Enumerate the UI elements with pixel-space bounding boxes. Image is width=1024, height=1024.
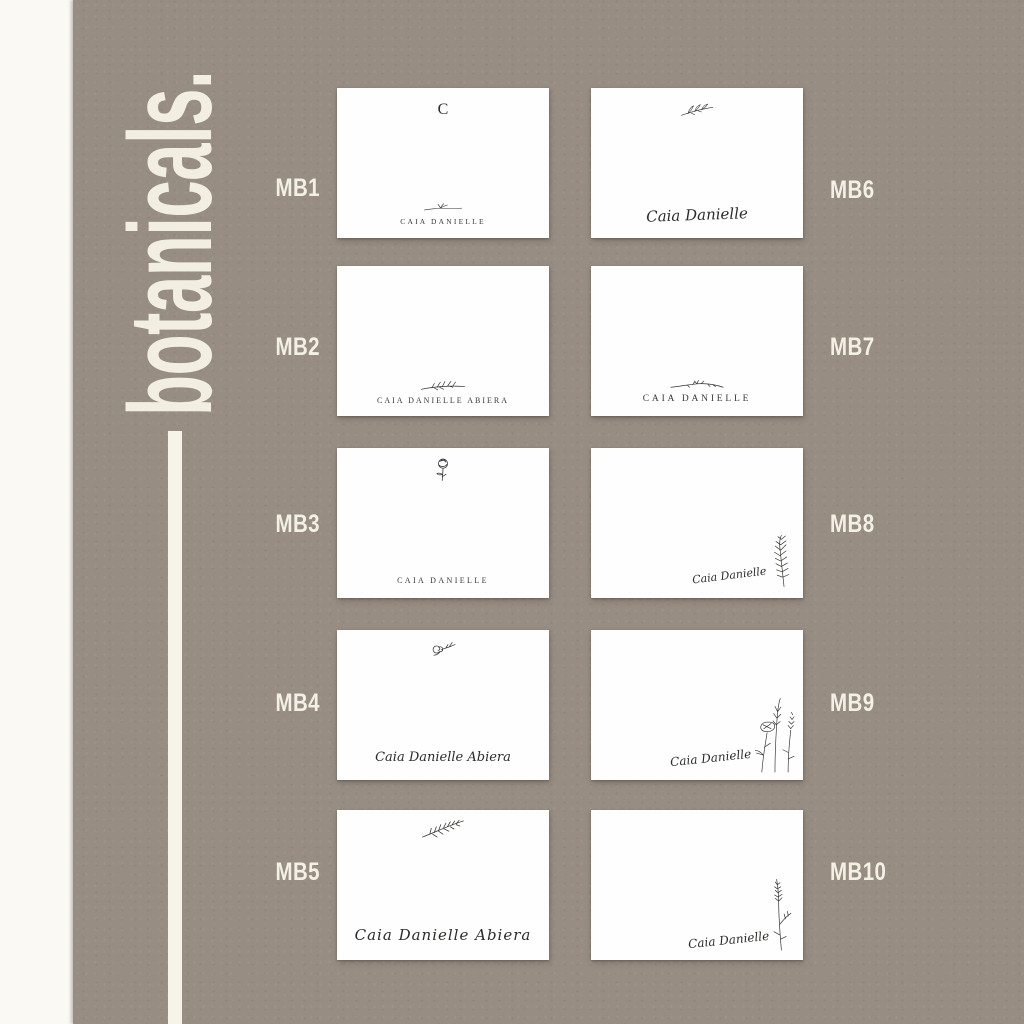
notecard-mb3[interactable]: CAIA DANIELLE: [337, 448, 549, 598]
card-name: CAIA DANIELLE: [337, 217, 549, 226]
vertical-divider-bar: [168, 431, 182, 1024]
card-name: Caia Danielle Abiera: [337, 750, 549, 765]
wildflowers-icon: [750, 689, 796, 775]
notecard-mb9[interactable]: Caia Danielle: [591, 630, 803, 780]
notecard-mb8[interactable]: Caia Danielle: [591, 448, 803, 598]
card-name: CAIA DANIELLE: [337, 576, 549, 585]
label-mb1: MB1: [246, 174, 320, 203]
monogram-initial: C: [337, 101, 549, 119]
botanical-flourish-icon: [591, 379, 803, 390]
card-name: Caia Danielle: [692, 565, 768, 587]
card-name: Caia Danielle: [687, 929, 769, 951]
card-name: Caia Danielle Abiera: [337, 926, 549, 944]
label-mb6: MB6: [830, 176, 875, 205]
notecard-mb7[interactable]: CAIA DANIELLE: [591, 266, 803, 416]
label-mb3: MB3: [246, 510, 320, 539]
label-mb2: MB2: [246, 333, 320, 362]
left-margin-strip: [0, 0, 73, 1024]
fern-leaf-icon: [337, 818, 549, 840]
notecard-mb10[interactable]: Caia Danielle: [591, 810, 803, 960]
twig-branch-icon: [337, 380, 549, 392]
peony-flower-icon: [337, 456, 549, 482]
label-mb7: MB7: [830, 333, 875, 362]
notecard-mb1[interactable]: C CAIA DANIELLE: [337, 88, 549, 238]
rosemary-sprig-icon: [771, 534, 793, 588]
label-mb9: MB9: [830, 689, 875, 718]
card-name: CAIA DANIELLE ABIERA: [337, 396, 549, 405]
label-mb10: MB10: [830, 858, 886, 887]
notecard-mb4[interactable]: Caia Danielle Abiera: [337, 630, 549, 780]
leafy-branch-icon: [591, 98, 803, 118]
flourish-sprig-icon: [337, 202, 549, 213]
lavender-sprig-icon: [761, 872, 795, 956]
card-name: Caia Danielle: [591, 202, 803, 227]
collection-title: botanicals.: [125, 71, 217, 416]
card-name: Caia Danielle: [669, 747, 751, 769]
card-name: CAIA DANIELLE: [591, 394, 803, 404]
notecard-mb6[interactable]: Caia Danielle: [591, 88, 803, 238]
rose-sprig-icon: [337, 641, 549, 658]
label-mb5: MB5: [246, 858, 320, 887]
label-mb8: MB8: [830, 510, 875, 539]
label-mb4: MB4: [246, 689, 320, 718]
notecard-mb5[interactable]: Caia Danielle Abiera: [337, 810, 549, 960]
notecard-mb2[interactable]: CAIA DANIELLE ABIERA: [337, 266, 549, 416]
